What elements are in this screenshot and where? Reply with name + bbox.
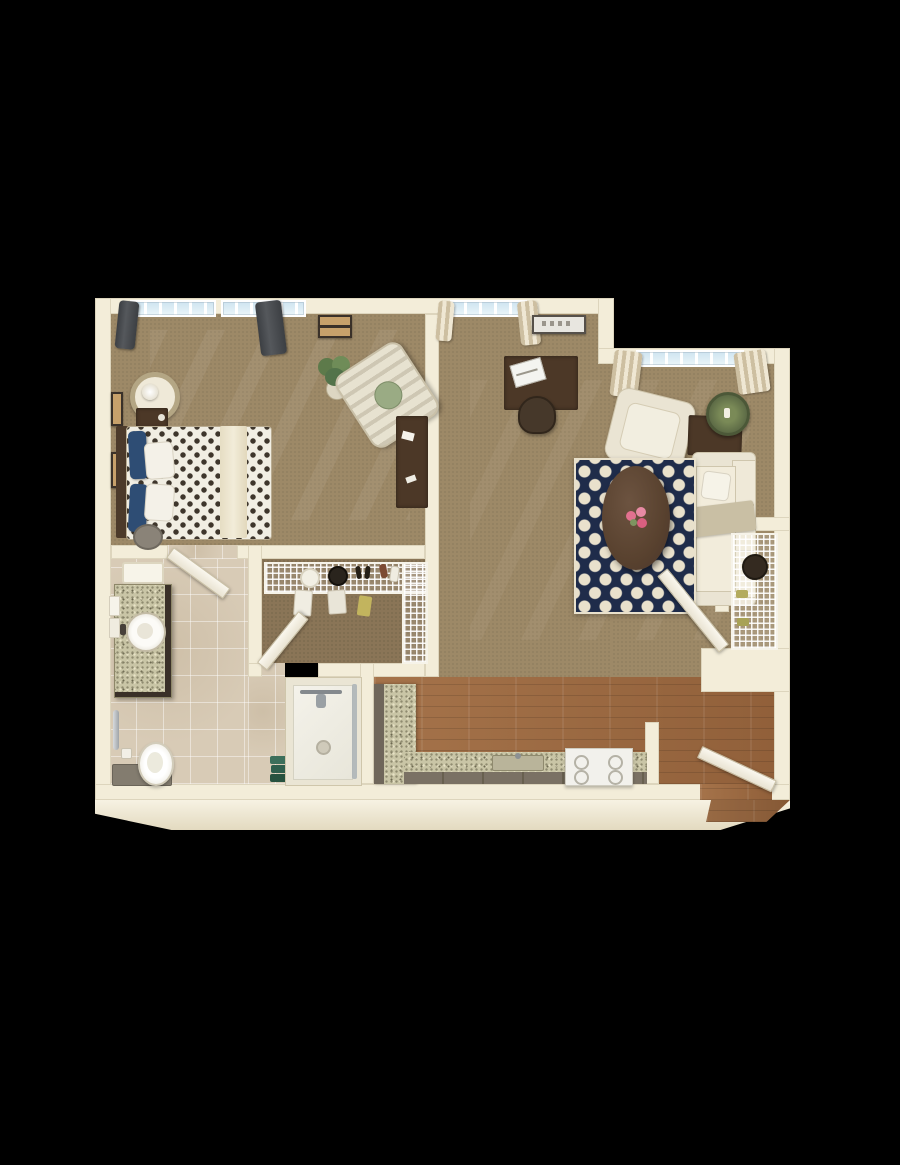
walkin-shower xyxy=(285,677,362,786)
wall-kitchen-entry-stub xyxy=(645,722,659,784)
living-basket-plant xyxy=(706,392,750,436)
bedroom-desk xyxy=(396,416,428,508)
closet-hanging-garment-yellow xyxy=(357,595,373,617)
living-desk-chair xyxy=(518,396,556,434)
bedroom-table-lamp xyxy=(142,384,158,400)
vanity-faucet xyxy=(120,624,126,635)
toilet xyxy=(138,742,174,786)
closet-hanging-garment-2 xyxy=(327,589,347,614)
entry-exterior-porch xyxy=(706,800,790,822)
closet-wire-shelf-right xyxy=(402,562,428,664)
bedroom-window-1 xyxy=(130,300,216,317)
linen-closet-towel-1 xyxy=(736,590,748,598)
armchair-green-pillow xyxy=(369,376,408,415)
shower-head xyxy=(316,694,326,708)
floorplan-screenshot xyxy=(0,0,900,1165)
bed xyxy=(116,426,270,538)
exterior-wall-left xyxy=(95,298,111,800)
shower-glass-door xyxy=(352,684,357,779)
bathroom-towel-2 xyxy=(109,618,120,638)
kitchen-sink xyxy=(492,755,544,771)
exterior-wall-bottom xyxy=(95,784,790,800)
wall-shower-kitchen xyxy=(360,663,374,784)
living-window-1 xyxy=(450,300,527,317)
bed-throw-blanket xyxy=(220,426,247,538)
wall-bedroom-bottom-right xyxy=(237,545,425,559)
wall-linen-closet-bottom xyxy=(701,648,790,692)
linen-closet-towel-2 xyxy=(737,618,749,626)
vanity-vessel-sink xyxy=(126,612,166,652)
closet-hat-black xyxy=(328,566,348,586)
toilet-paper-holder xyxy=(121,748,132,759)
shower-drain xyxy=(316,740,331,755)
coffee-table-flowers xyxy=(624,505,650,531)
living-curtain-2-right xyxy=(733,349,771,395)
nightstand-clock xyxy=(158,414,165,421)
living-window-2 xyxy=(636,350,744,367)
bathroom-ceiling-light xyxy=(122,562,164,584)
linen-closet-basket xyxy=(742,554,768,580)
exterior-wall-bottom-face xyxy=(95,800,790,830)
bed-pillow-white-1 xyxy=(143,441,175,480)
bedroom-wall-art-top-2 xyxy=(318,326,352,338)
living-wall-art xyxy=(532,315,586,334)
kitchen-range xyxy=(565,748,633,786)
closet-hat-white xyxy=(300,568,320,588)
bed-pillow-white-2 xyxy=(144,483,176,522)
bedroom-wall-art-left-1 xyxy=(111,392,123,426)
bedroom-hamper xyxy=(133,524,163,550)
bathroom-towel-1 xyxy=(109,596,120,616)
sofa-pillow xyxy=(700,470,732,502)
bathroom-grab-bar xyxy=(113,710,119,750)
